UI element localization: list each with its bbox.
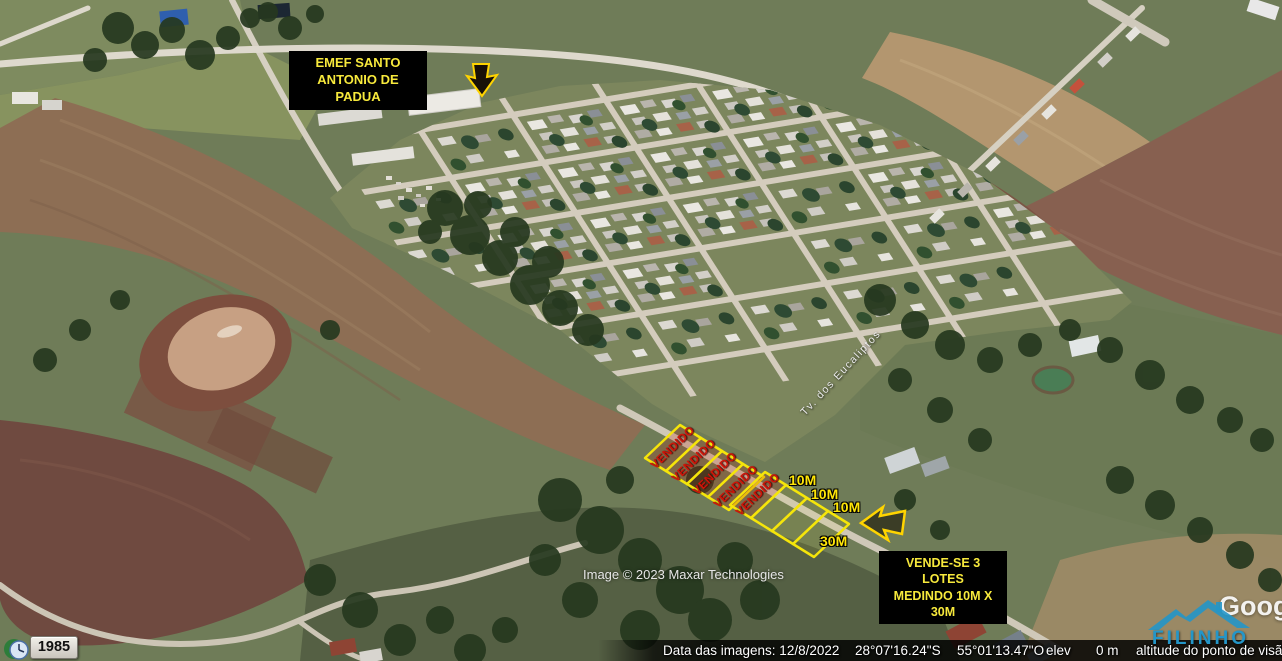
elevation-label: elev: [1046, 643, 1071, 658]
house-roof-icon: [1146, 598, 1256, 632]
small-pond: [1033, 367, 1073, 393]
google-earth-window: Goog FILINHO Tv. dos Eucaliptos EMEF SAN…: [0, 0, 1282, 661]
imagery-date: Data das imagens: 12/8/2022: [663, 643, 839, 658]
lot-measurement-label: 10M: [833, 499, 860, 515]
sale-offer-line3: 30M: [884, 604, 1002, 620]
historical-imagery-clock-icon[interactable]: [3, 637, 29, 661]
camera-altitude-label: altitude do ponto de visão: [1136, 643, 1282, 658]
school-label-line2: ANTONIO DE PADUA: [294, 72, 422, 106]
longitude-readout: 55°01'13.47"O: [957, 643, 1044, 658]
sale-offer-line2: MEDINDO 10M X: [884, 588, 1002, 604]
lot-measurement-label: 30M: [820, 533, 847, 549]
historical-imagery-year-button[interactable]: 1985: [30, 636, 78, 659]
sale-offer-label: VENDE-SE 3 LOTES MEDINDO 10M X 30M: [879, 551, 1007, 624]
school-label: EMEF SANTO ANTONIO DE PADUA: [289, 51, 427, 110]
satellite-map[interactable]: [0, 0, 1282, 661]
school-label-line1: EMEF SANTO: [294, 55, 422, 72]
imagery-credit: Image © 2023 Maxar Technologies: [583, 567, 784, 582]
sale-offer-line1: VENDE-SE 3 LOTES: [884, 555, 1002, 588]
elevation-value: 0 m: [1096, 643, 1119, 658]
latitude-readout: 28°07'16.24"S: [855, 643, 941, 658]
